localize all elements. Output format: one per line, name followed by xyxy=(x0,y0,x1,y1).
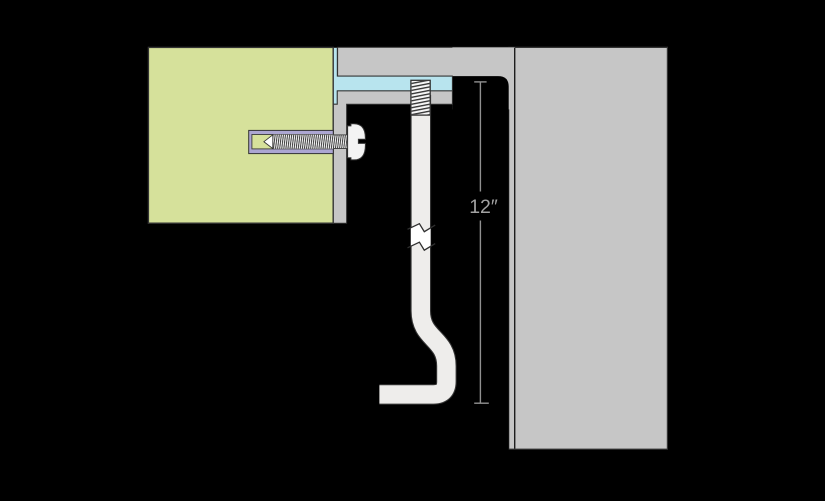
svg-text:12″: 12″ xyxy=(469,196,498,218)
